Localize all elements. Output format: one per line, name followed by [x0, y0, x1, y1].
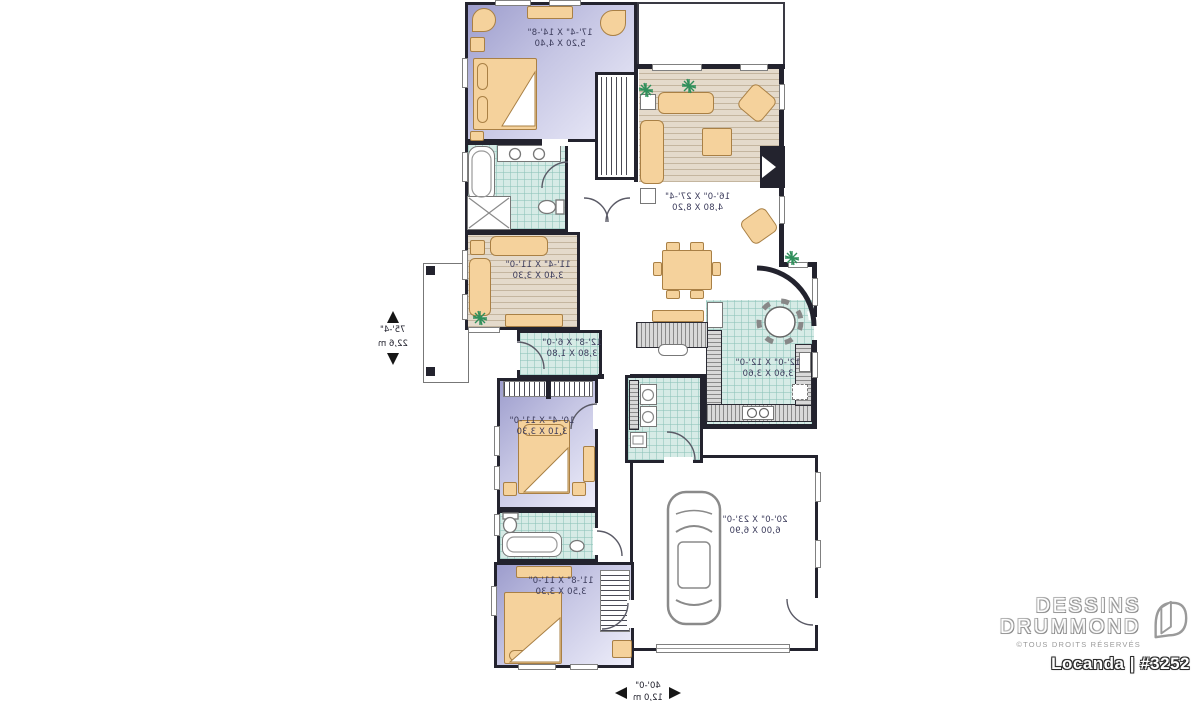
room-size-m: 3,60 X 3,60	[715, 369, 821, 380]
closet-hangers	[601, 77, 631, 175]
brand-logo-block: DESSINS DRUMMOND ©TOUS DROITS RÉSERVÉS L…	[975, 596, 1190, 688]
window	[491, 586, 497, 616]
room-size-m: 4,80 X 8,20	[640, 203, 755, 214]
door-gap	[593, 403, 600, 429]
arrow-left-icon	[615, 687, 627, 699]
table-lamp	[470, 240, 485, 255]
room-label-hall: 12'-8" X 6'-0" 3,80 X 1,80	[518, 338, 626, 361]
room-label-bedroom-3: 11'-8" X 11'-0" 3,50 X 3,30	[506, 576, 616, 599]
window	[462, 250, 468, 280]
shower	[467, 196, 511, 230]
drummond-d-logo-icon	[1148, 596, 1190, 644]
room-size-m: 6,00 X 6,90	[705, 526, 805, 537]
room-size-ft: 12'-0" X 12'-0"	[715, 358, 821, 369]
room-label-living-room: 16'-0" X 27'-4" 4,80 X 8,20	[640, 192, 755, 215]
wall	[702, 424, 817, 429]
window	[788, 262, 808, 268]
nightstand	[612, 640, 632, 658]
depth-dimension-marker: 75'-4" 22,6 m	[368, 292, 418, 384]
coffee-table	[702, 128, 732, 156]
room-size-m: 3,10 X 3,30	[492, 427, 592, 438]
door-gap	[812, 598, 819, 625]
window	[494, 514, 500, 536]
width-ft: 40'-0"	[633, 681, 663, 693]
pillow	[509, 650, 557, 661]
window	[549, 0, 581, 6]
dining-chair	[666, 242, 680, 251]
bathtub	[468, 146, 495, 202]
depth-ft: 75'-4"	[380, 325, 406, 337]
dishwasher	[792, 384, 808, 400]
window	[815, 472, 821, 502]
dining-chair	[712, 262, 721, 276]
room-size-ft: 11'-4" X 11'-0"	[483, 260, 593, 271]
wall	[546, 379, 551, 399]
width-dimension-text: 40'-0" 12,0 m	[633, 681, 663, 705]
room-size-m: 5,20 X 4,40	[500, 39, 620, 50]
window	[495, 0, 531, 6]
window	[812, 278, 818, 306]
brand-wordmark: DESSINS DRUMMOND ©TOUS DROITS RÉSERVÉS	[1000, 596, 1141, 649]
corner-chair	[472, 8, 496, 32]
table-lamp	[470, 37, 485, 52]
arrow-down-icon	[387, 353, 399, 365]
vanity-double-sink	[497, 145, 561, 162]
door-gap	[593, 528, 600, 555]
room-size-ft: 20'-0" X 23'-0"	[705, 515, 805, 526]
brand-copyright: ©TOUS DROITS RÉSERVÉS	[1000, 640, 1141, 649]
washer	[640, 384, 657, 405]
stove	[742, 406, 774, 420]
room-size-m: 3,40 X 3,30	[483, 271, 593, 282]
sofa	[658, 92, 714, 114]
room-label-den: 11'-4" X 11'-0" 3,40 X 3,30	[483, 260, 593, 283]
window	[468, 327, 500, 333]
brand-line1: DESSINS	[1000, 596, 1141, 617]
porch-post	[426, 266, 435, 275]
pillow	[477, 96, 488, 123]
room-size-ft: 11'-8" X 11'-0"	[506, 576, 616, 587]
dryer	[640, 406, 657, 427]
window	[518, 664, 556, 670]
room-size-ft: 16'-0" X 27'-4"	[640, 192, 755, 203]
room-garage	[630, 455, 818, 651]
tv-console	[505, 314, 563, 327]
fireplace-opening	[762, 156, 776, 178]
room-size-ft: 12'-8" X 6'-0"	[518, 338, 626, 349]
room-label-garage: 20'-0" X 23'-0" 6,00 X 6,90	[705, 515, 805, 538]
dresser	[583, 446, 595, 482]
refrigerator	[707, 302, 723, 328]
dining-chair	[690, 242, 704, 251]
laundry-sink	[630, 432, 647, 448]
arrow-right-icon	[669, 687, 681, 699]
width-dimension-marker: 40'-0" 12,0 m	[580, 678, 716, 708]
room-size-m: 3,50 X 3,30	[506, 587, 616, 598]
porch-post	[426, 367, 435, 376]
nightstand	[503, 482, 517, 496]
room-label-bedroom-2: 10'-4" X 11'-0" 3,10 X 3,30	[492, 416, 592, 439]
desk-hutch	[652, 310, 704, 322]
room-size-ft: 17'-4" X 14'-8"	[500, 28, 620, 39]
window	[652, 64, 702, 71]
plan-name-number: Locanda | #3252	[975, 654, 1190, 674]
side-table	[640, 94, 656, 110]
floor-plan-canvas: 17'-4" X 14'-8" 5,20 X 4,40 16'-0" X 27'…	[0, 0, 1200, 711]
window	[462, 152, 468, 182]
dining-chair	[653, 262, 662, 276]
bathtub	[502, 532, 562, 557]
window	[570, 664, 598, 670]
pillow	[477, 63, 488, 90]
sofa	[490, 236, 548, 256]
dresser	[527, 6, 573, 19]
nightstand	[572, 482, 586, 496]
window	[740, 64, 768, 71]
window	[462, 294, 468, 320]
dining-chair	[666, 290, 680, 299]
window	[494, 466, 500, 490]
sofa	[640, 120, 664, 184]
door-gap	[627, 600, 634, 628]
table-lamp	[470, 131, 484, 141]
window	[815, 540, 821, 568]
window	[462, 58, 468, 88]
depth-m: 22,6 m	[378, 339, 408, 351]
room-size-m: 3,80 X 1,80	[518, 349, 626, 360]
arrow-up-icon	[387, 311, 399, 323]
door-gap	[664, 457, 693, 464]
garage-door	[656, 644, 790, 653]
laundry-counter	[629, 380, 639, 430]
dining-chair	[690, 290, 704, 299]
brand-line2: DRUMMOND	[1000, 617, 1141, 638]
deck	[637, 2, 785, 66]
desk-chair	[658, 344, 688, 356]
window	[779, 84, 785, 110]
room-label-kitchen: 12'-0" X 12'-0" 3,60 X 3,60	[715, 358, 821, 381]
width-m: 12,0 m	[633, 693, 663, 705]
dining-table	[662, 250, 712, 290]
door-gap	[542, 139, 568, 146]
wall	[634, 68, 638, 182]
room-label-master-bedroom: 17'-4" X 14'-8" 5,20 X 4,40	[500, 28, 620, 51]
window	[779, 196, 785, 224]
room-size-ft: 10'-4" X 11'-0"	[492, 416, 592, 427]
porch	[423, 263, 469, 383]
